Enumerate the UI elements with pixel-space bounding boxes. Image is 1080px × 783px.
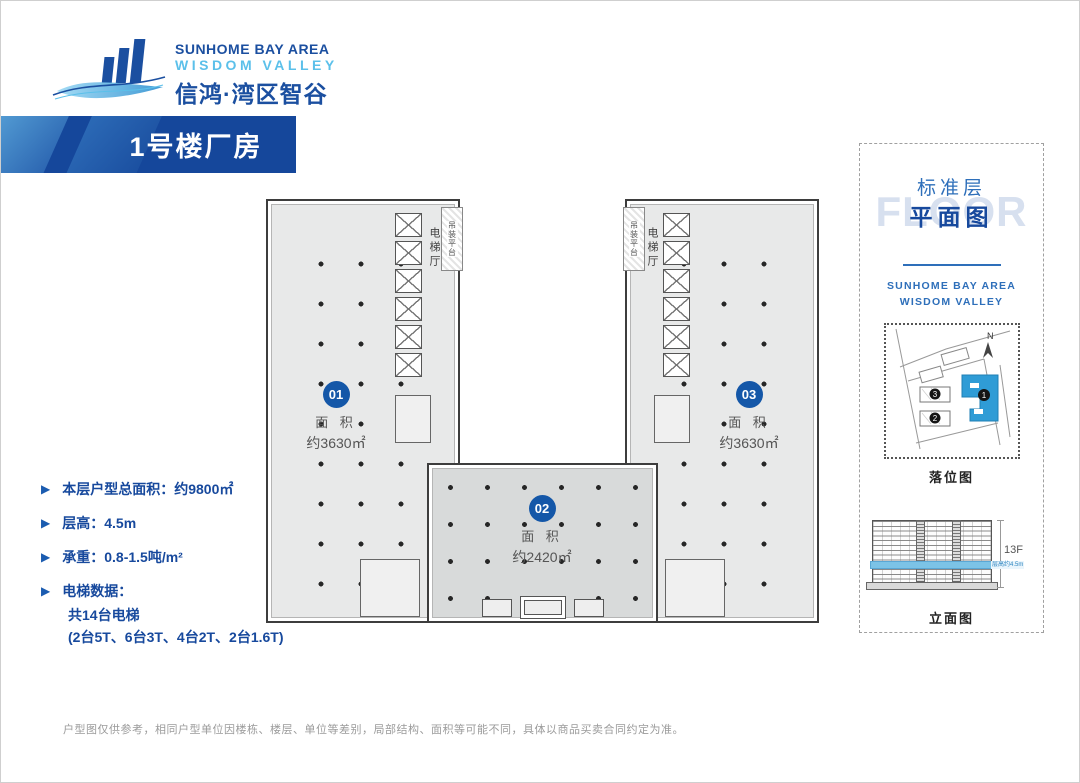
elevator-hall-label-left: 电梯厅 (426, 227, 442, 269)
unit-01-badge: 01 (323, 381, 350, 408)
elevator-shaft-icon (663, 213, 690, 237)
panel-title-line2: 平面图 (860, 202, 1043, 232)
panel-brand: SUNHOME BAY AREA WISDOM VALLEY (860, 278, 1043, 311)
stair-wing-right (665, 559, 725, 617)
elevation-diagram: 13F 层高约4.5m (860, 516, 1043, 600)
elevation-floor-height-tag: 层高约4.5m (991, 561, 1024, 569)
spec-elevator-breakdown: (2台5T、6台3T、4台2T、2台1.6T) (41, 626, 311, 648)
panel-brand-line1: SUNHOME BAY AREA (860, 278, 1043, 294)
unit-03-label: 03 面 积 约3630㎡ (689, 381, 809, 453)
panel-brand-line2: WISDOM VALLEY (860, 294, 1043, 310)
elevation-core-strip (952, 520, 961, 582)
elevation-highlight-floor (870, 561, 994, 569)
brochure-page: SUNHOME BAY AREA WISDOM VALLEY 信鸿·湾区智谷 1… (0, 0, 1080, 783)
site-map-drawing: 1 3 2 N (886, 325, 1014, 453)
building-1-notch (970, 383, 979, 388)
elevator-shaft-icon (395, 325, 422, 349)
logo-text: SUNHOME BAY AREA WISDOM VALLEY 信鸿·湾区智谷 (175, 41, 338, 109)
elevator-shaft-icon (663, 297, 690, 321)
elevation-building (872, 520, 992, 584)
entrance-detail (520, 596, 566, 619)
elevator-shaft-icon (663, 353, 690, 377)
elevator-shaft-icon (663, 325, 690, 349)
elevation-dimension-line (1000, 520, 1001, 588)
unit-02-badge: 02 (529, 495, 556, 522)
elevator-shaft-icon (395, 297, 422, 321)
panel-title-cn: 标准层 平面图 (860, 176, 1043, 232)
entrance-detail (574, 599, 604, 617)
elevator-shaft-icon (395, 353, 422, 377)
elevator-shaft-icon (395, 241, 422, 265)
building-1-number: 1 (981, 391, 986, 400)
elevator-core-right (663, 213, 690, 381)
elevator-core-left (395, 213, 422, 381)
building-title: 1号楼厂房 (1, 116, 296, 173)
stair-core-left (395, 395, 431, 443)
panel-divider (903, 264, 1001, 266)
site-location-map: 1 3 2 N (884, 323, 1020, 459)
unit-03-area-value: 约3630㎡ (689, 433, 809, 453)
elevator-shaft-icon (395, 269, 422, 293)
unit-01-label: 01 面 积 约3630㎡ (276, 381, 396, 453)
unit-02-area-value: 约2420㎡ (482, 547, 602, 567)
unit-02-area-label: 面 积 (482, 527, 602, 547)
triangle-bullet-icon: ▶ (41, 547, 50, 568)
unit-03-area-label: 面 积 (689, 413, 809, 433)
elevator-hall-label-right: 电梯厅 (644, 227, 660, 269)
elevation-floors-label: 13F (1004, 544, 1023, 556)
unit-03-badge: 03 (736, 381, 763, 408)
triangle-bullet-icon: ▶ (41, 513, 50, 534)
side-info-panel: FLOOR 标准层 平面图 SUNHOME BAY AREA WISDOM VA… (859, 143, 1044, 633)
entrance-detail (482, 599, 512, 617)
hoist-platform-right: 吊装平台 (623, 207, 645, 271)
elevation-caption: 立面图 (860, 608, 1043, 627)
panel-title-line1: 标准层 (860, 176, 1043, 202)
triangle-bullet-icon: ▶ (41, 581, 50, 602)
panel-title-block: FLOOR 标准层 平面图 (860, 174, 1043, 256)
stair-core-right (654, 395, 690, 443)
unit-01-area-label: 面 积 (276, 413, 396, 433)
elevator-shaft-icon (663, 241, 690, 265)
triangle-bullet-icon: ▶ (41, 479, 50, 500)
elevation-base (866, 582, 998, 590)
building-3-number: 3 (932, 390, 937, 399)
north-label: N (987, 331, 994, 341)
building-2-number: 2 (932, 414, 937, 423)
building-title-banner: 1号楼厂房 (1, 116, 296, 173)
disclaimer-text: 户型图仅供参考，相同户型单位因楼栋、楼层、单位等差别，局部结构、面积等可能不同，… (63, 721, 684, 737)
unit-02-label: 02 面 积 约2420㎡ (482, 495, 602, 567)
logo-en-line2: WISDOM VALLEY (175, 57, 338, 73)
north-arrow-icon (983, 342, 993, 358)
logo-wave-bars-icon (51, 33, 169, 111)
elevator-shaft-icon (663, 269, 690, 293)
elevator-shaft-icon (395, 213, 422, 237)
company-logo: SUNHOME BAY AREA WISDOM VALLEY 信鸿·湾区智谷 (51, 33, 338, 111)
logo-cn-name: 信鸿·湾区智谷 (175, 75, 338, 109)
hoist-platform-left: 吊装平台 (441, 207, 463, 271)
logo-bars (102, 39, 146, 83)
building-1-notch (974, 409, 983, 414)
elevation-core-strip (916, 520, 925, 582)
sitemap-caption: 落位图 (860, 467, 1043, 486)
floor-plan: 电梯厅 电梯厅 吊装平台 吊装平台 01 面 积 约3630㎡ 02 面 积 约… (266, 199, 819, 623)
unit-01-area-value: 约3630㎡ (276, 433, 396, 453)
stair-wing-left (360, 559, 420, 617)
logo-en-line1: SUNHOME BAY AREA (175, 41, 338, 57)
